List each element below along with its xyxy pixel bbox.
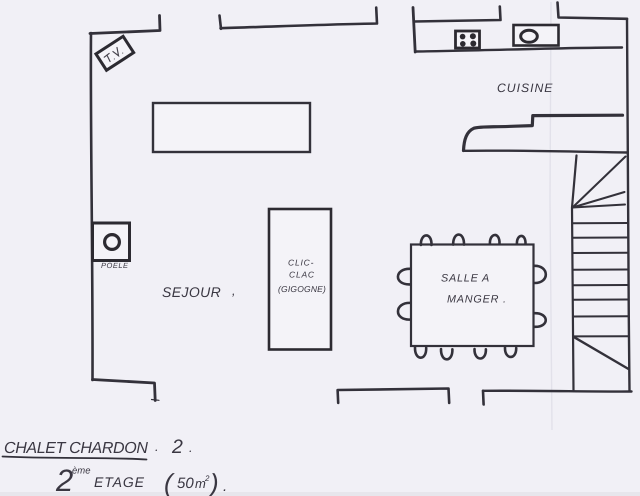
- svg-text:.: .: [223, 478, 227, 495]
- svg-text:CHALET CHARDON: CHALET CHARDON: [4, 440, 148, 457]
- svg-text:ETAGE: ETAGE: [94, 474, 145, 490]
- svg-text:50: 50: [177, 475, 194, 492]
- svg-text:2: 2: [171, 436, 183, 458]
- svg-text:SALLE A: SALLE A: [441, 273, 490, 285]
- svg-text:,: ,: [232, 284, 235, 298]
- svg-text:POELE: POELE: [101, 261, 129, 270]
- svg-text:SEJOUR: SEJOUR: [162, 284, 221, 300]
- svg-text:CLIC-: CLIC-: [288, 258, 314, 268]
- svg-text:CLAC: CLAC: [289, 270, 315, 280]
- svg-text:2: 2: [55, 463, 73, 496]
- svg-text:(GIGOGNE): (GIGOGNE): [278, 284, 326, 294]
- svg-text:MANGER .: MANGER .: [447, 294, 507, 306]
- svg-text:CUISINE: CUISINE: [497, 81, 553, 95]
- svg-text:.: .: [189, 440, 193, 455]
- svg-text:ème: ème: [72, 466, 90, 477]
- svg-text:.: .: [155, 439, 159, 454]
